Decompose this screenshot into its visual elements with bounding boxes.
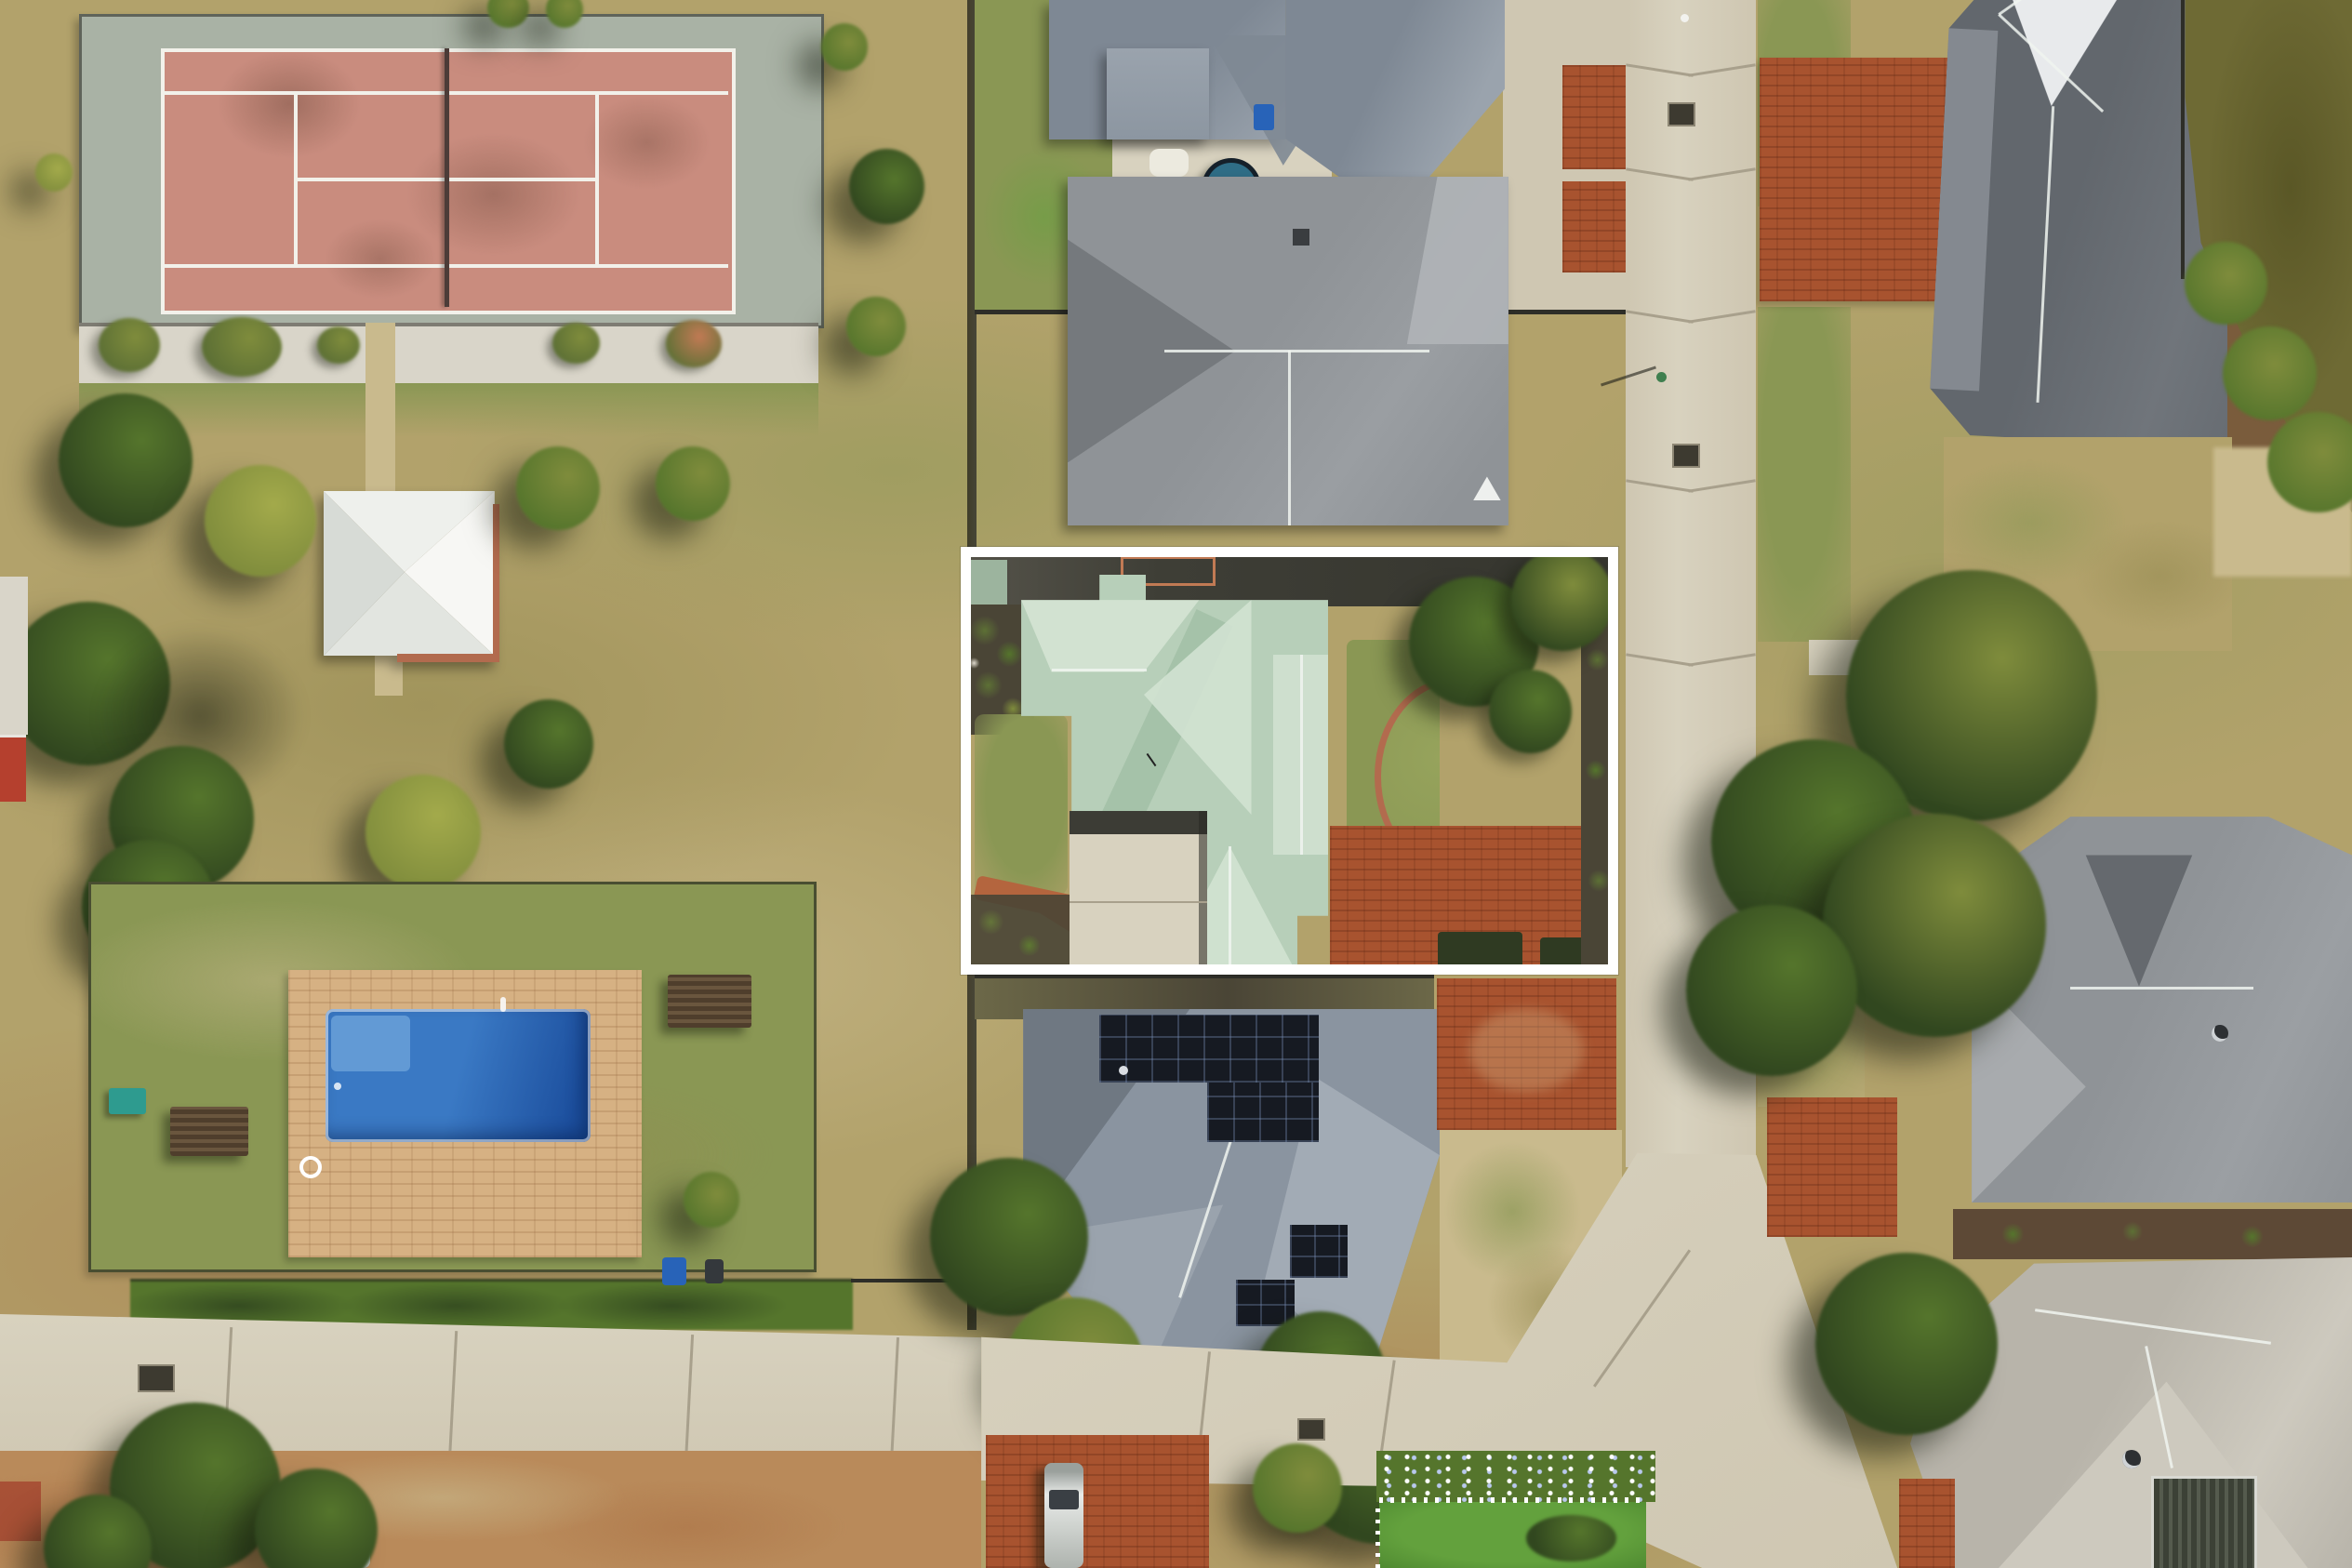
street-joint — [1593, 1249, 1691, 1388]
satellite-dish — [2122, 1450, 2141, 1468]
tree — [656, 446, 730, 521]
tree — [205, 465, 316, 577]
blue-bin — [1254, 104, 1274, 130]
pool-ring-toy — [299, 1156, 322, 1178]
tree — [849, 149, 924, 224]
verge-lawn — [1758, 307, 1851, 642]
esky-box — [109, 1088, 146, 1114]
solar-array — [1099, 1015, 1319, 1083]
pond-fence — [2181, 0, 2185, 279]
street-chevron — [1626, 653, 1693, 666]
drain-grate — [138, 1364, 175, 1392]
pond-bank-grass — [2185, 242, 2267, 325]
mid-right-brick-drive — [1767, 1097, 1897, 1237]
red-shed — [0, 735, 26, 802]
gazebo-roof — [324, 491, 495, 656]
tennis-net — [445, 48, 449, 307]
pond-bank-grass — [2223, 326, 2317, 420]
shrub — [846, 297, 905, 356]
gray-house-roof-wing — [1407, 177, 1508, 344]
pool-handrail — [500, 997, 506, 1012]
gray-house-roof — [1068, 177, 1508, 525]
pool-glint — [334, 1083, 341, 1090]
tree — [1815, 1253, 1998, 1435]
tree — [1686, 905, 1857, 1076]
chimney — [1293, 229, 1309, 246]
picnic-table — [668, 975, 751, 1028]
aerial-photo — [0, 0, 2352, 1568]
pergola — [2151, 1476, 2257, 1568]
park-path — [365, 323, 395, 493]
street-chevron — [1688, 63, 1755, 76]
wheelie-bin-dark — [705, 1259, 724, 1283]
roof-ridge — [1164, 350, 1428, 352]
tree — [59, 393, 193, 527]
shrub — [666, 320, 723, 367]
swimming-pool — [326, 1009, 591, 1142]
lawn-tree — [1526, 1515, 1617, 1561]
street-chevron — [1626, 63, 1693, 76]
gazebo-brick-edge-bottom — [397, 654, 499, 662]
roof-ridge — [2070, 987, 2252, 990]
solar-array — [1290, 1225, 1348, 1278]
roof-ridge — [2035, 1309, 2271, 1346]
red-ground-patch — [0, 1482, 41, 1541]
car-windshield — [1049, 1490, 1079, 1508]
roof-ridge — [1288, 351, 1291, 525]
picket-fence — [1379, 1497, 1646, 1503]
south-brick-drive — [986, 1435, 1209, 1568]
solar-array — [1207, 1083, 1319, 1142]
brick-patch-bottom-right — [1899, 1479, 1955, 1568]
shrub — [99, 318, 160, 371]
flower-garden — [1376, 1451, 1655, 1502]
top-house-garage-roof — [1107, 48, 1209, 140]
fenced-lawn — [1379, 1502, 1646, 1568]
solar-array — [1236, 1280, 1295, 1326]
drain-grate — [1668, 102, 1695, 126]
street-chevron — [1688, 653, 1755, 666]
edge-path — [0, 577, 28, 735]
street-chevron — [1626, 479, 1693, 492]
shrub — [317, 326, 360, 364]
brick-driveway — [1562, 65, 1626, 169]
roof-antenna — [1119, 1066, 1128, 1075]
satellite-dish — [2212, 1025, 2228, 1042]
street-lamp — [1656, 372, 1667, 382]
brick-driveway — [1562, 181, 1626, 272]
tree — [1823, 814, 2046, 1037]
pool-steps — [331, 1016, 411, 1071]
street-white-dot — [1681, 14, 1689, 22]
gazebo-brick-edge — [493, 504, 499, 656]
street-chevron — [1688, 479, 1755, 492]
patio-item-white — [1149, 149, 1189, 177]
tennis-line-service-right — [595, 91, 599, 264]
street-chevron — [1688, 167, 1755, 180]
roof-ridge — [2036, 106, 2054, 403]
tree — [930, 1158, 1088, 1316]
top-right-brick-drive — [1760, 58, 1950, 301]
tree — [1253, 1443, 1342, 1533]
picket-fence-side — [1375, 1502, 1380, 1568]
dormer-white — [1473, 476, 1501, 500]
tree — [504, 699, 593, 789]
tree — [516, 446, 600, 530]
highlight-box — [961, 547, 1618, 975]
brick-weathered — [1469, 1009, 1584, 1093]
tree — [684, 1172, 739, 1228]
street-chevron — [1626, 167, 1693, 180]
shrub — [35, 153, 73, 191]
street-chevron — [1688, 310, 1755, 323]
tree — [365, 775, 481, 890]
drain-grate — [1672, 444, 1700, 468]
mulch-strip-bottom — [1953, 1209, 2352, 1259]
picnic-table — [170, 1107, 248, 1156]
parked-car-silver-2 — [1044, 1463, 1083, 1568]
lawn-strip — [79, 383, 818, 437]
drain-grate — [1297, 1418, 1325, 1441]
shrub — [821, 23, 869, 71]
shrub — [202, 317, 282, 377]
wheelie-bin-blue — [662, 1257, 686, 1285]
street-chevron — [1626, 310, 1693, 323]
solar-house-brick-drive — [1437, 978, 1616, 1130]
shrub — [552, 323, 600, 364]
